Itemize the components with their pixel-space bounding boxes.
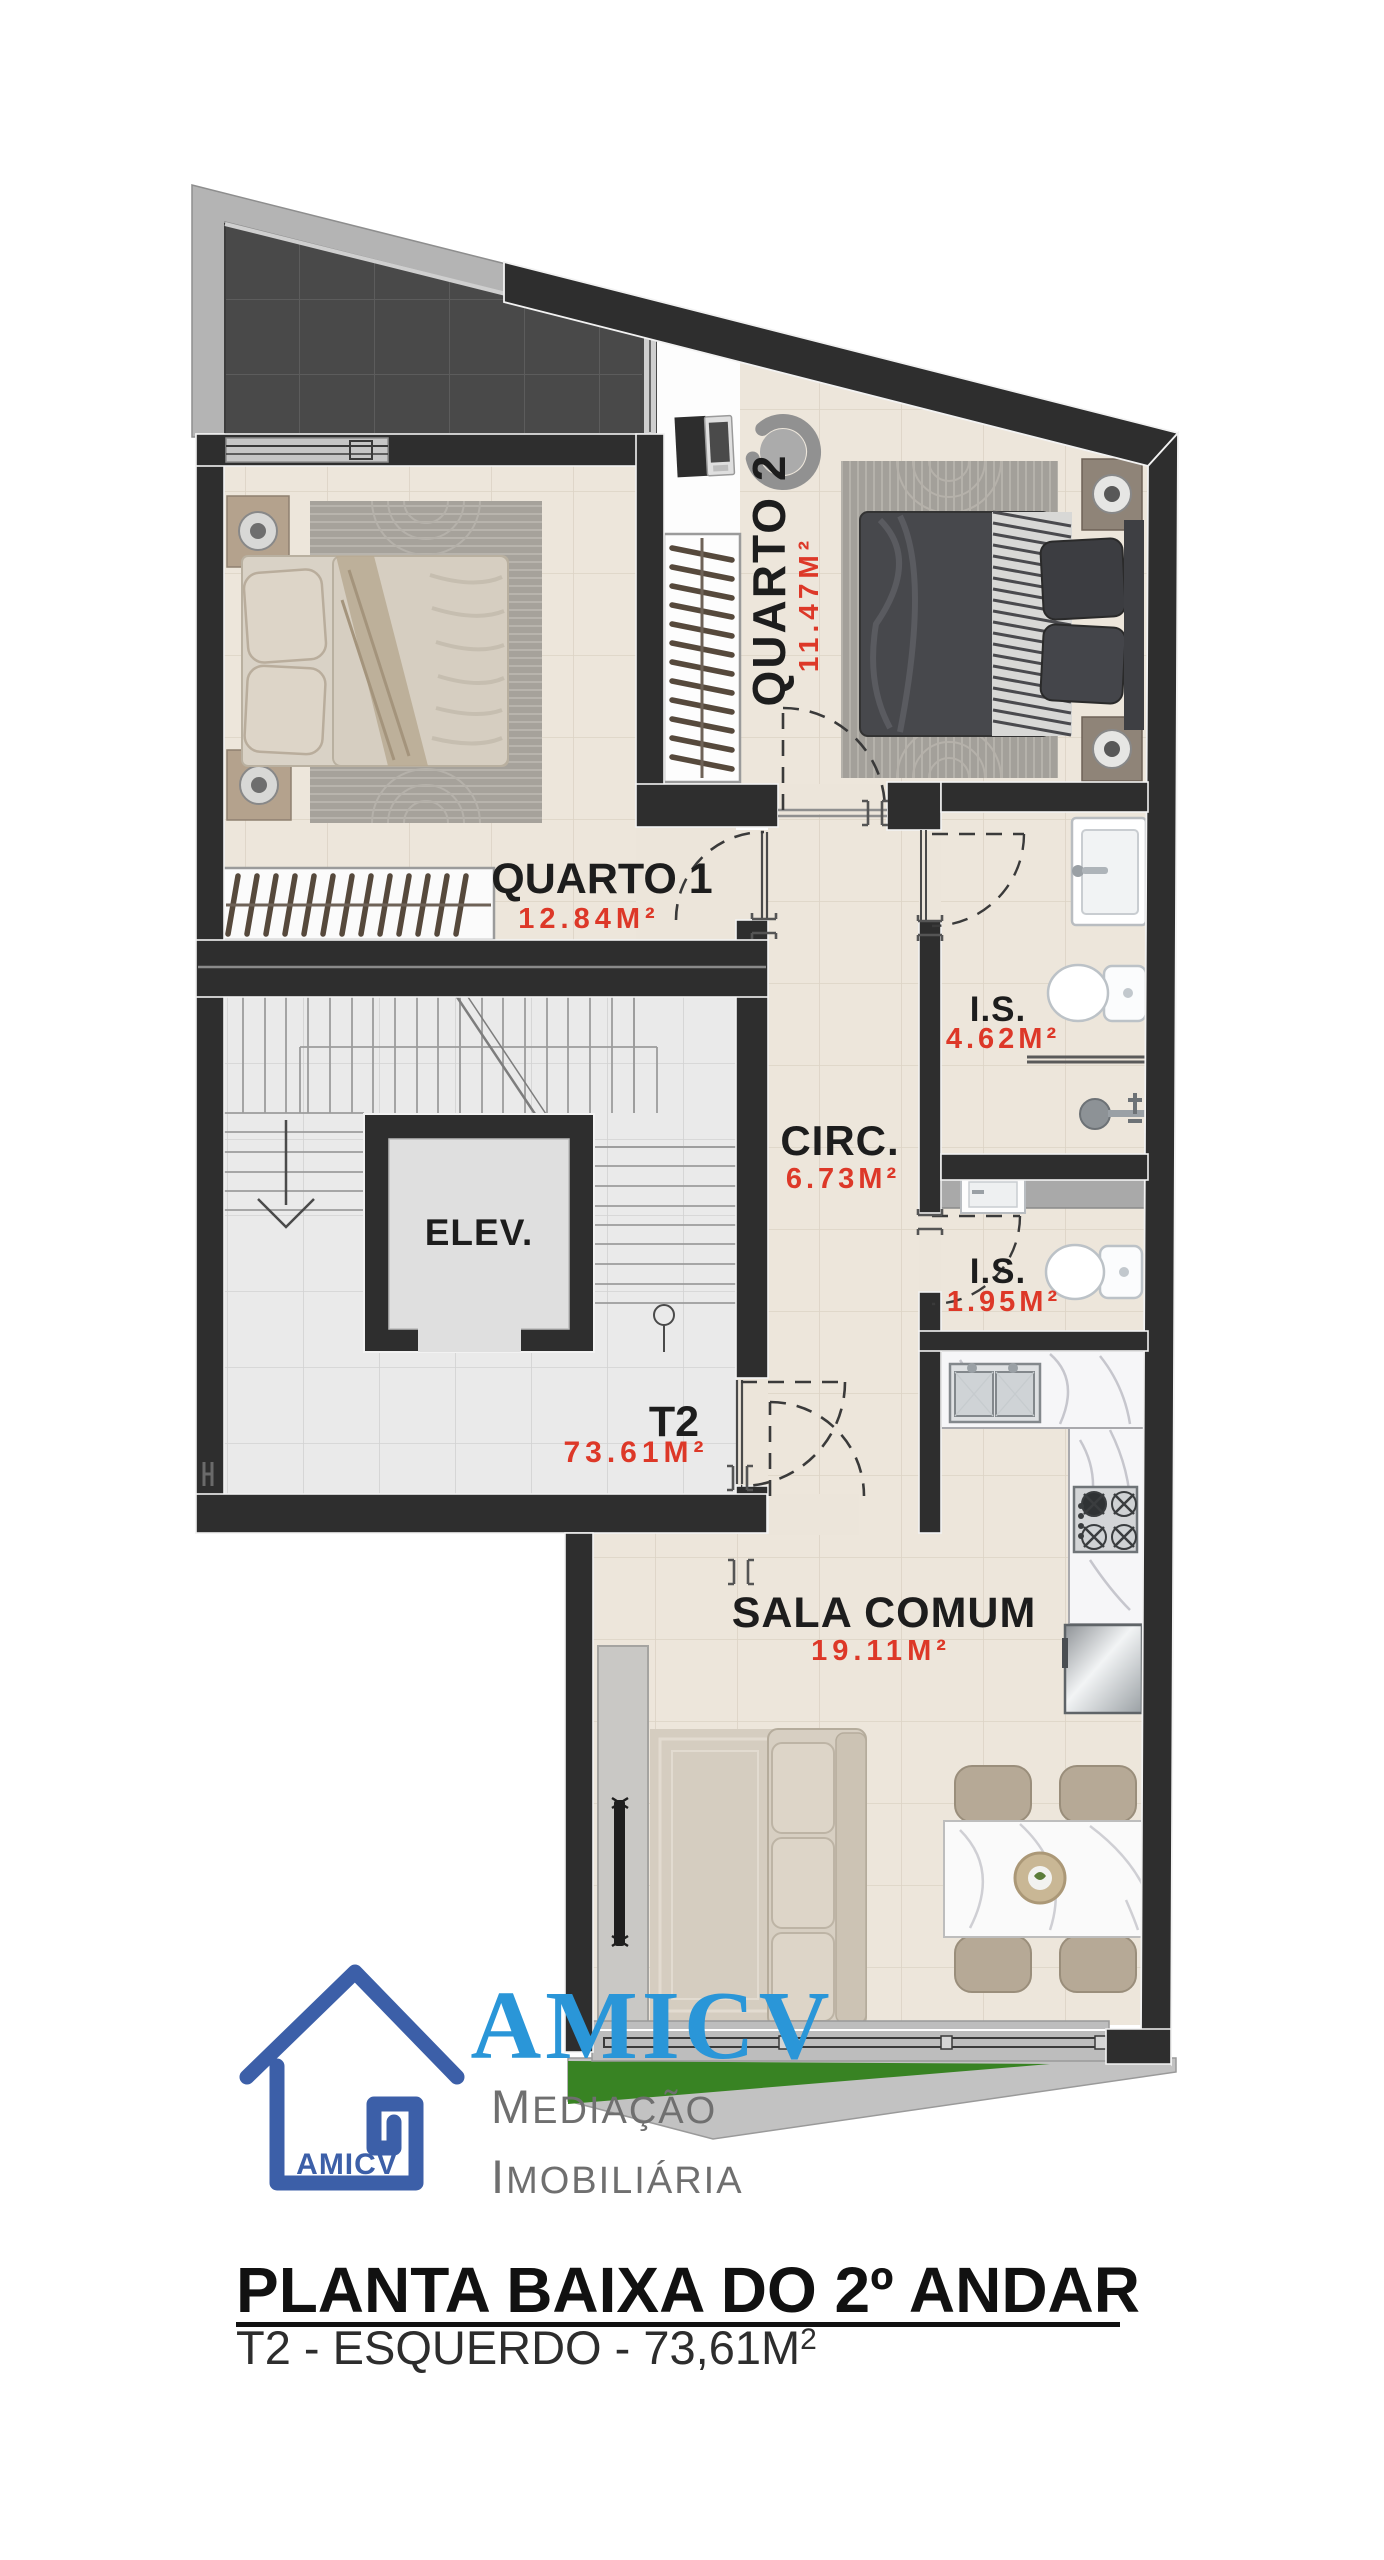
svg-text:AMICV: AMICV [471, 1972, 834, 2080]
svg-text:12.84M²: 12.84M² [518, 903, 659, 935]
svg-text:1.95M²: 1.95M² [947, 1286, 1061, 1318]
svg-text:PLANTA BAIXA DO 2º ANDAR: PLANTA BAIXA DO 2º ANDAR [236, 2254, 1140, 2326]
svg-text:ELEV.: ELEV. [425, 1212, 534, 1253]
svg-text:AMICV: AMICV [296, 2148, 398, 2181]
svg-text:73.61M²: 73.61M² [563, 1436, 708, 1469]
svg-text:QUARTO 1: QUARTO 1 [491, 855, 712, 903]
svg-text:CIRC.: CIRC. [780, 1117, 899, 1164]
svg-text:QUARTO 2: QUARTO 2 [743, 454, 795, 707]
svg-text:4.62M²: 4.62M² [946, 1023, 1060, 1055]
svg-text:T2 - ESQUERDO - 73,61M2: T2 - ESQUERDO - 73,61M2 [236, 2321, 817, 2374]
svg-text:6.73M²: 6.73M² [786, 1163, 900, 1195]
svg-text:19.11M²: 19.11M² [811, 1635, 951, 1667]
svg-text:SALA COMUM: SALA COMUM [732, 1589, 1037, 1637]
svg-text:11.47M²: 11.47M² [793, 536, 824, 672]
